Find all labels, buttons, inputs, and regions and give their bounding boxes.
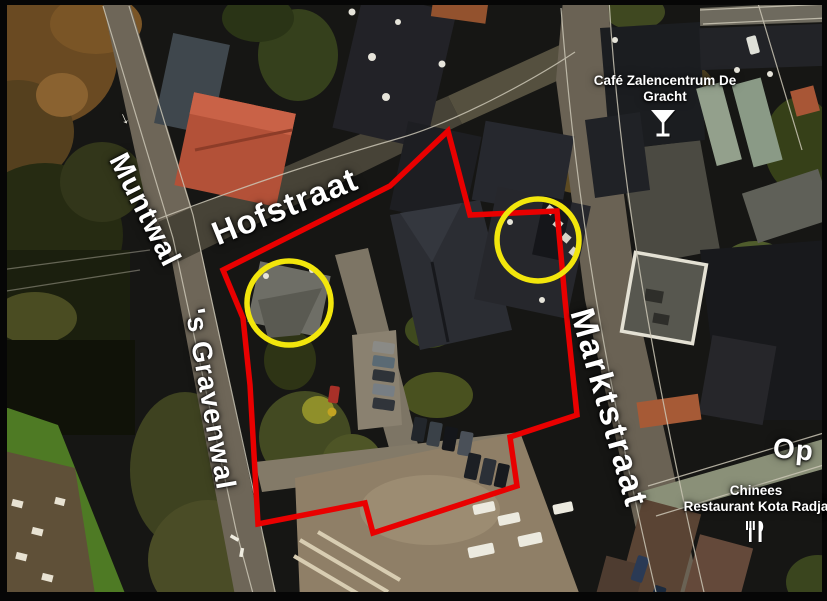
poi-restaurant-line1: Chinees <box>675 483 827 499</box>
poi-restaurant-line2: Restaurant Kota Radja <box>675 499 827 515</box>
aerial-map-figure: → Muntwal Hofstraat 's Gravenwal Marktst… <box>0 0 827 601</box>
street-label-op: Op <box>772 432 816 467</box>
poi-cafe-line1: Café Zalencentrum De <box>570 73 760 89</box>
poi-label-restaurant: Chinees Restaurant Kota Radja <box>675 483 827 515</box>
poi-cafe-line2: Gracht <box>570 89 760 105</box>
poi-label-cafe: Café Zalencentrum De Gracht <box>570 73 760 105</box>
